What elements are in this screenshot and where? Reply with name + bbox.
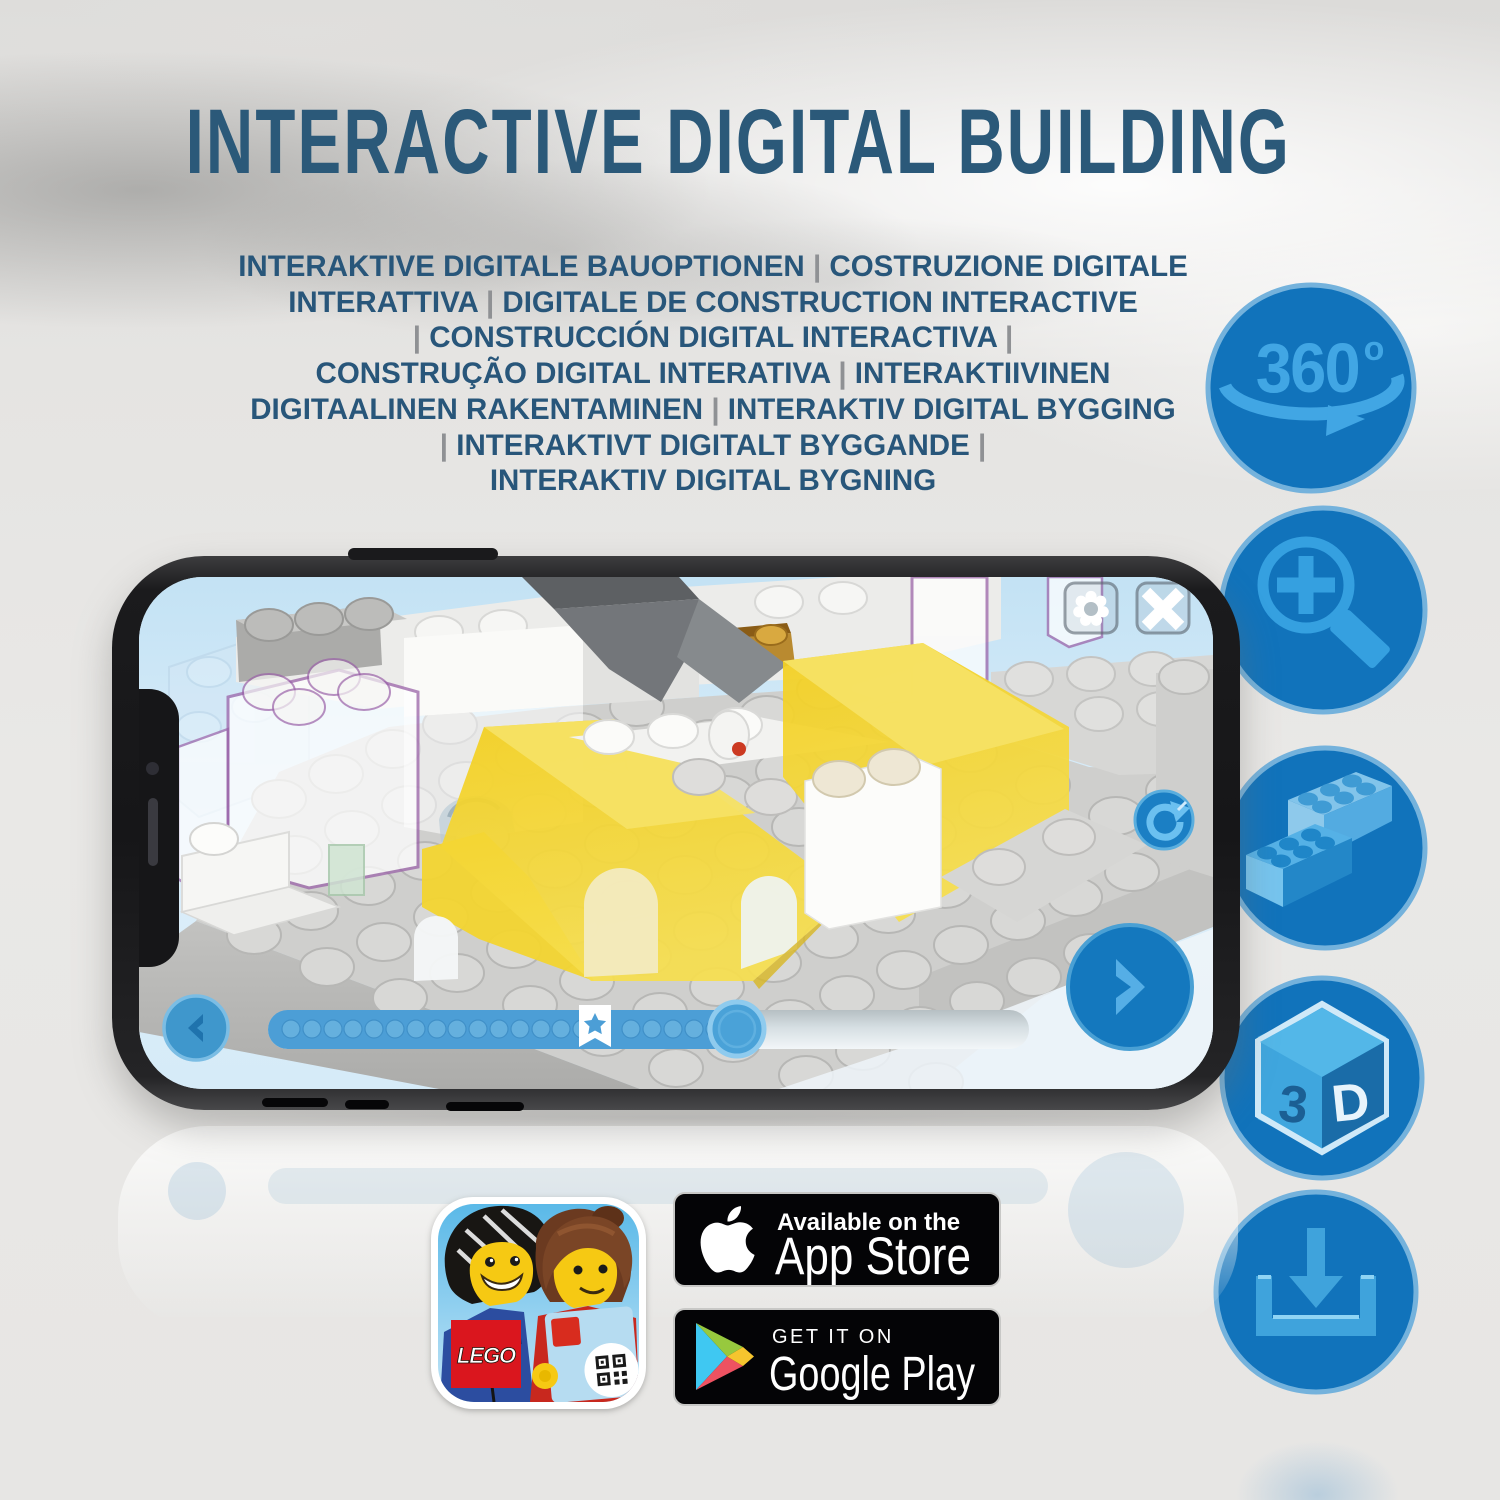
svg-text:Google Play: Google Play xyxy=(769,1348,975,1401)
svg-text:o: o xyxy=(1364,330,1385,368)
svg-text:3: 3 xyxy=(1276,1075,1311,1136)
svg-text:360: 360 xyxy=(1256,330,1359,408)
svg-text:App Store: App Store xyxy=(775,1227,971,1286)
svg-text:D: D xyxy=(1329,1072,1372,1134)
svg-text:LEGO: LEGO xyxy=(457,1343,516,1368)
svg-text:GET IT ON: GET IT ON xyxy=(772,1326,894,1348)
